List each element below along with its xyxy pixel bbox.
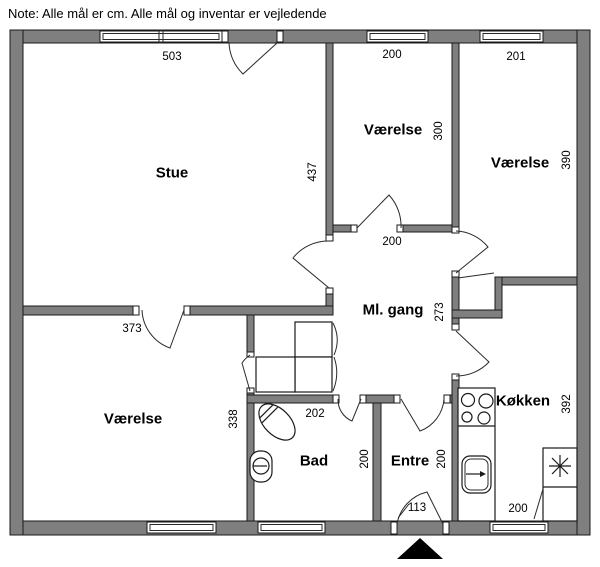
closet-hall-3 <box>256 357 295 392</box>
closet-niche-front <box>458 273 494 278</box>
note-text: Note: Alle mål er cm. Alle mål og invent… <box>8 6 327 21</box>
door-vaerelse-bottom-side <box>242 355 250 391</box>
dim-vaerelse-bottom-width: 373 <box>122 323 141 335</box>
dim-vaerelse-right-width: 201 <box>506 51 525 63</box>
dim-koekken-height: 392 <box>561 394 573 413</box>
toilet <box>252 397 301 446</box>
kitchen-counter <box>458 388 495 521</box>
closet-hall-2 <box>295 357 332 392</box>
door-stue-garden <box>229 43 277 74</box>
door-stue-vaerelse-bottom <box>142 310 184 348</box>
kitchen-sink <box>462 456 491 493</box>
dim-stue-width: 503 <box>162 51 181 63</box>
dim-entre-height: 200 <box>436 449 448 468</box>
door-vaerelse-right <box>456 231 488 273</box>
room-label-bad: Bad <box>300 453 328 470</box>
door-vaerelse-mid <box>357 195 401 228</box>
room-label-vaerelse-mid: Værelse <box>364 122 422 139</box>
door-stue-hall <box>293 241 329 288</box>
floor-plan <box>0 0 600 567</box>
entrance-arrow <box>397 538 443 559</box>
door-entre <box>401 399 444 431</box>
window-bad <box>258 522 325 533</box>
dim-ml-gang-width: 200 <box>382 236 401 248</box>
window-koekken <box>490 522 548 533</box>
closet-door-curve-2 <box>333 357 337 391</box>
closet-door-curve-1 <box>333 323 337 355</box>
room-label-entre: Entre <box>391 453 429 470</box>
door-bad <box>338 399 361 421</box>
bathroom-sink <box>250 451 272 482</box>
freezer-star-icon <box>549 455 571 477</box>
dim-entre-width: 113 <box>408 502 426 514</box>
dim-bad-width: 202 <box>305 408 324 420</box>
door-koekken <box>456 331 489 376</box>
room-label-vaerelse-right: Værelse <box>491 155 549 172</box>
dim-vaerelse-bottom-height: 338 <box>228 409 240 428</box>
room-label-ml-gang: Ml. gang <box>363 302 424 319</box>
window-stue <box>100 31 222 42</box>
fridge-freezer <box>543 448 577 521</box>
room-label-koekken: Køkken <box>496 393 550 410</box>
window-vaerelse-right <box>480 31 543 42</box>
closet-hall-1 <box>295 322 332 357</box>
dim-vaerelse-mid-width: 200 <box>382 49 401 61</box>
dim-vaerelse-mid-height: 300 <box>433 121 445 140</box>
dim-ml-gang-height: 273 <box>434 302 446 321</box>
room-label-vaerelse-bottom: Værelse <box>104 411 162 428</box>
room-label-stue: Stue <box>156 165 189 182</box>
window-vaerelse-mid <box>367 31 428 42</box>
dim-vaerelse-right-height: 390 <box>561 150 573 169</box>
dim-bad-height: 200 <box>359 449 371 468</box>
window-vaerelse-bottom <box>147 522 216 533</box>
dim-stue-height: 437 <box>307 162 319 181</box>
dim-koekken-width: 200 <box>508 503 527 515</box>
